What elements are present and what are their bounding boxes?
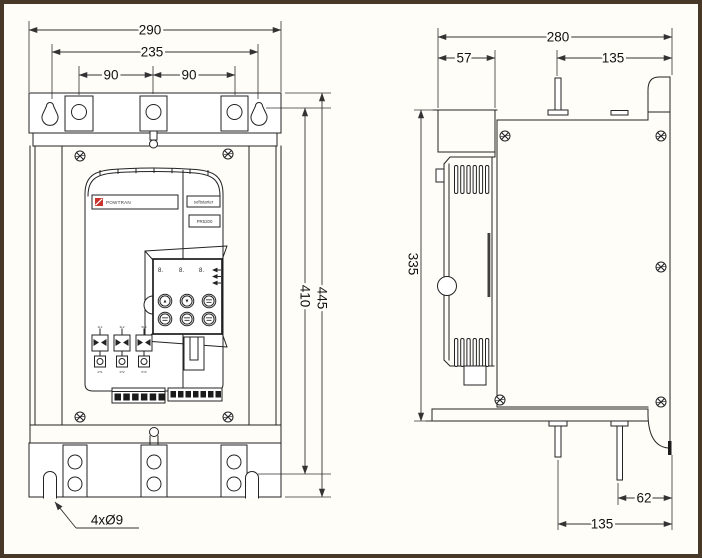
- bottom-pin-long: [555, 426, 561, 457]
- cover-protrusion: [464, 366, 486, 385]
- phase-label-top: 1L1: [97, 325, 102, 329]
- front-top-mounting-bar: [29, 93, 281, 133]
- screw-icon: [495, 395, 505, 405]
- bottom-pin-short: [617, 426, 623, 480]
- screw-icon: [500, 131, 510, 141]
- keyhole-slot-bottom-left: [44, 472, 57, 499]
- hanger-pin: [150, 131, 157, 140]
- connector-slot: [184, 337, 204, 370]
- side-slot: [488, 233, 491, 297]
- dim-290-label: 290: [139, 23, 162, 38]
- dim-410-label: 410: [298, 285, 313, 308]
- dim-335-label: 335: [406, 253, 421, 276]
- phase-label-bottom: 4T2: [119, 370, 125, 374]
- screw-icon: [75, 151, 85, 161]
- cover-tab: [436, 169, 444, 182]
- phase-label-bottom: 6T3: [141, 370, 147, 374]
- model-label: PR5200: [197, 219, 213, 224]
- screw-icon: [656, 397, 666, 407]
- dim-280-label: 280: [547, 30, 570, 45]
- top-pin: [555, 78, 561, 112]
- screw-icon: [223, 412, 233, 422]
- up-button-glyph: ▲: [163, 298, 168, 304]
- display-digit: 8.: [158, 268, 163, 274]
- cover-knockout-hole: [438, 277, 457, 296]
- dim-445-label: 445: [315, 287, 330, 310]
- screw-icon: [656, 262, 666, 272]
- technical-drawing: POWTRAN softstarter PR5200 8. 8. 8.: [0, 0, 702, 558]
- terminal-block-right: [171, 391, 222, 398]
- led-indicators: [212, 268, 221, 286]
- dim-90-right-label: 90: [181, 68, 196, 83]
- phase-label-top: 3L2: [119, 325, 124, 329]
- mount-hole: [227, 455, 241, 469]
- hanger-pin-hole: [150, 140, 158, 148]
- mount-hole: [68, 477, 82, 491]
- mount-hole: [147, 455, 161, 469]
- hanger-pin-hole: [150, 428, 159, 437]
- phase-label-top: 5L3: [141, 325, 146, 329]
- screw-icon: [656, 131, 666, 141]
- dim-62-label: 62: [636, 491, 651, 506]
- brand-label: POWTRAN: [106, 200, 131, 205]
- screw-icon: [75, 412, 85, 422]
- keyhole-slot-bottom-right: [246, 472, 259, 499]
- slot-note-label: 4xØ9: [91, 513, 123, 528]
- display-digit: 8.: [199, 268, 204, 274]
- mount-hole: [68, 455, 82, 469]
- dim-57-label: 57: [456, 51, 471, 66]
- mount-hole: [147, 477, 161, 491]
- phase-label-bottom: 2T1: [97, 370, 103, 374]
- mount-hole: [146, 105, 161, 120]
- front-cover: POWTRAN softstarter PR5200 8. 8. 8.: [85, 168, 227, 391]
- mount-hole: [227, 477, 241, 491]
- dim-135-top-label: 135: [602, 51, 625, 66]
- dim-90-left-label: 90: [103, 68, 118, 83]
- screw-icon: [223, 149, 233, 159]
- dim-135-bottom-label: 135: [591, 517, 614, 532]
- mount-hole: [227, 105, 242, 120]
- product-label: softstarter: [194, 199, 214, 204]
- display-digit: 8.: [179, 268, 184, 274]
- dim-235-label: 235: [141, 45, 164, 60]
- mount-hole: [72, 105, 87, 120]
- down-button-glyph: ▼: [185, 298, 190, 304]
- top-tab: [611, 111, 628, 116]
